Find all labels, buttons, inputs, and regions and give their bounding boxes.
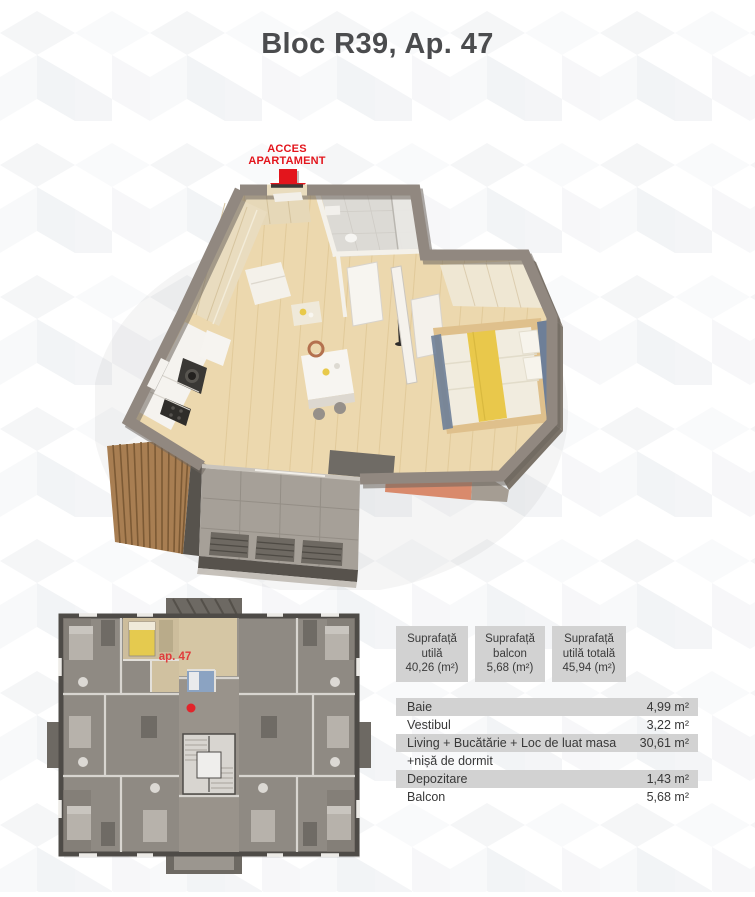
unit-number-label: ap. 47: [159, 651, 192, 663]
row-value: 1,43 m²: [647, 772, 689, 786]
row-label: +nișă de dormit: [407, 754, 493, 768]
summary-box-balcon-label: Suprafață balcon: [477, 632, 543, 662]
row-label: Depozitare: [407, 772, 467, 786]
summary-box-utila-label: Suprafață utilă: [398, 632, 466, 662]
room-areas-table: Baie 4,99 m² Vestibul 3,22 m² Living + B…: [396, 698, 698, 806]
balcony: [197, 468, 360, 588]
row-label: Balcon: [407, 790, 445, 804]
page-title: Bloc R39, Ap. 47: [0, 28, 755, 61]
row-value: 4,99 m²: [647, 700, 689, 714]
summary-box-balcon: Suprafață balcon 5,68 (m²): [475, 626, 545, 682]
row-label: Living + Bucătărie + Loc de luat masa: [407, 736, 616, 750]
table-row-living: Living + Bucătărie + Loc de luat masa 30…: [396, 734, 698, 752]
row-value: 5,68 m²: [647, 790, 689, 804]
building-floor-plan: ap. 47: [45, 596, 373, 882]
surface-summary: Suprafață utilă 40,26 (m²) Suprafață bal…: [396, 626, 626, 682]
bed: [431, 318, 557, 434]
row-label: Baie: [407, 700, 432, 714]
row-label: Vestibul: [407, 718, 451, 732]
table-row-baie: Baie 4,99 m²: [396, 698, 698, 716]
summary-box-utila-value: 40,26 (m²): [398, 661, 466, 676]
summary-box-totala: Suprafață utilă totală 45,94 (m²): [552, 626, 626, 682]
row-value: 30,61 m²: [640, 736, 689, 750]
table-row-depozitare: Depozitare 1,43 m²: [396, 770, 698, 788]
summary-box-utila: Suprafață utilă 40,26 (m²): [396, 626, 468, 682]
table-row-vestibul: Vestibul 3,22 m²: [396, 716, 698, 734]
apartment-3d-plan: [95, 150, 573, 590]
table-row-nisa: +nișă de dormit: [396, 752, 698, 770]
row-value: 3,22 m²: [647, 718, 689, 732]
stairwell: [183, 734, 235, 794]
unit-location-dot: [187, 704, 196, 713]
summary-box-totala-label: Suprafață utilă totală: [554, 632, 624, 662]
table-row-balcon: Balcon 5,68 m²: [396, 788, 698, 806]
summary-box-balcon-value: 5,68 (m²): [477, 661, 543, 676]
bathroom: [320, 190, 424, 257]
summary-box-totala-value: 45,94 (m²): [554, 661, 624, 676]
